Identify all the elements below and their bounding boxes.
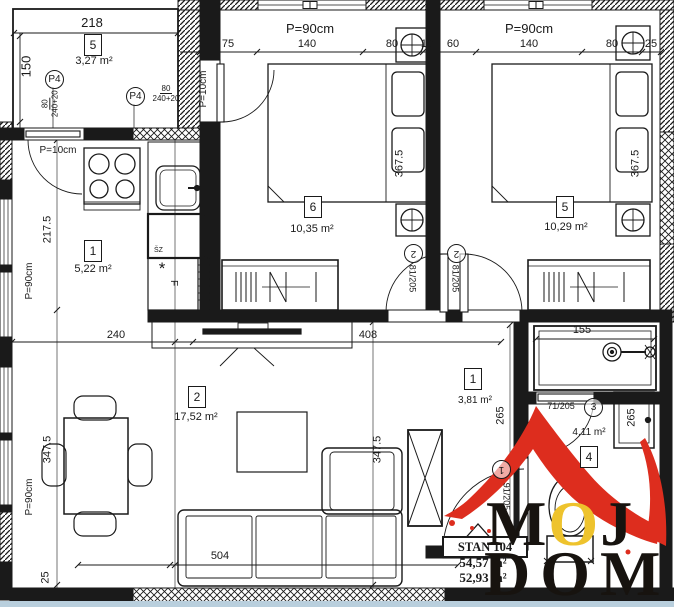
window-top-a (258, 0, 366, 10)
room-area-bathroom: 4,11 m² (560, 428, 618, 438)
door-mark-bathroom: 3 (584, 398, 603, 417)
dim-top-1: 75 (200, 39, 256, 50)
window-left-a (0, 192, 12, 344)
window-left-b (0, 360, 12, 512)
room-area-bedroom-a: 10,35 m² (282, 224, 342, 235)
wardrobe-a (222, 260, 338, 310)
terrace-bedroom-door (200, 60, 274, 122)
dim-top-8: 25 (638, 39, 664, 50)
chair (128, 444, 152, 486)
dim-top-2: 140 (254, 39, 360, 50)
washer-label: ŠZ (154, 247, 194, 254)
door-size-bedroom-a: 81/205 (408, 257, 417, 301)
room-number-bathroom: 4 (580, 446, 598, 468)
dim-top-5: 60 (430, 39, 476, 50)
parapet-terrace-door: P=10cm (199, 65, 209, 113)
room-area-hall: 3,81 m² (448, 396, 502, 406)
dim-living-w2: 408 (348, 330, 388, 341)
p4-numerator: 80 (160, 84, 173, 94)
kitchen-fixtures (84, 142, 210, 310)
door-size-bathroom: 71/205 (540, 402, 582, 411)
dim-bath: 265 (627, 403, 638, 433)
room-number-bedroom-b: 5 (556, 196, 574, 218)
bedroom-b-furniture (492, 26, 652, 310)
floor-plan: 218 150 5 3,27 m² P4 80 240+20 P4 80 240… (0, 0, 674, 607)
p4-denominator: 240+20 (153, 94, 180, 103)
pillow (392, 72, 424, 116)
dim-wall-offset: 25 (41, 566, 52, 590)
dim-living-w1: 240 (96, 330, 136, 341)
room-area-kitchen: 5,22 m² (64, 264, 122, 275)
appliance-note: * (154, 260, 170, 277)
room-number-terrace: 5 (84, 34, 102, 56)
window-mark-p4-a-size: 80 240+20 (40, 84, 59, 124)
parapet-window-b: P=90cm (487, 22, 571, 35)
window-mark-p4-b: P4 (126, 87, 145, 106)
coffee-table (237, 412, 307, 472)
bed-b (492, 64, 652, 202)
chair (74, 396, 116, 420)
dim-living-depth-right: 347.5 (373, 430, 384, 470)
window-mark-p4-b-size: 80 240+20 (146, 84, 186, 103)
p4-numerator: 80 (40, 97, 50, 110)
dim-top-6: 140 (476, 39, 582, 50)
pillow (616, 72, 648, 116)
bedroom-b-door (460, 254, 522, 312)
parapet-window-left-a: P=90cm (25, 257, 35, 305)
room-number-kitchen: 1 (84, 240, 102, 262)
room-number-hall: 1 (464, 368, 482, 390)
sink (148, 142, 208, 214)
parapet-window-a: P=90cm (268, 22, 352, 35)
window-top-b (484, 0, 592, 10)
parapet-window-left-b: P=90cm (25, 473, 35, 521)
room-number-bedroom-a: 6 (304, 196, 322, 218)
dim-bedroom-a-depth: 367.5 (395, 144, 406, 184)
room-area-terrace: 3,27 m² (64, 56, 124, 67)
stove (84, 148, 140, 210)
p4-denominator: 240+20 (51, 90, 60, 117)
dining-table (42, 396, 152, 536)
wardrobe-b (528, 260, 650, 310)
dim-terrace-height: 150 (20, 50, 33, 84)
parapet-kitchen-door: P=10cm (32, 146, 84, 156)
dim-terrace-width: 218 (62, 16, 122, 29)
room-area-living: 17,52 m² (166, 412, 226, 423)
dim-shower: 155 (558, 325, 606, 336)
dim-hall: 265 (496, 401, 507, 431)
dim-top-3: 80 (362, 39, 422, 50)
dim-kitchen-depth: 217.5 (43, 210, 54, 250)
logo-dom: DOM (484, 542, 670, 606)
dim-bedroom-b-depth: 367.5 (631, 144, 642, 184)
fridge-label: F (168, 276, 178, 290)
dim-sofa: 504 (200, 551, 240, 562)
room-area-bedroom-b: 10,29 m² (536, 222, 596, 233)
dim-top-7: 80 (582, 39, 642, 50)
door-size-bedroom-b: 81/205 (451, 257, 460, 301)
dim-living-depth-left: 347.5 (43, 430, 54, 470)
room-number-living: 2 (188, 386, 206, 408)
chair (74, 512, 116, 536)
entry-wardrobe (408, 430, 442, 526)
